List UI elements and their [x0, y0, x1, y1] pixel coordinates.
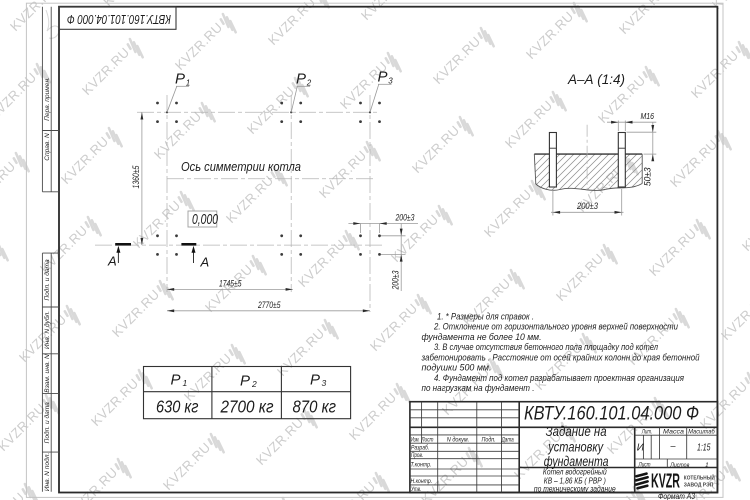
- svg-text:2: 2: [251, 379, 257, 389]
- svg-text:1360±5: 1360±5: [131, 165, 141, 189]
- svg-text:Р: Р: [378, 68, 388, 85]
- svg-text:1:15: 1:15: [697, 441, 711, 453]
- svg-text:Утв.: Утв.: [410, 486, 421, 493]
- svg-text:N докум.: N докум.: [447, 436, 469, 444]
- svg-text:870 кг: 870 кг: [293, 396, 337, 416]
- svg-text:А–А (1:4): А–А (1:4): [567, 71, 625, 87]
- svg-text:2. Отклонение от горизонтал: 2. Отклонение от горизонтального уровня …: [433, 322, 678, 332]
- svg-text:KVZR: KVZR: [651, 470, 680, 492]
- svg-text:установку: установку: [548, 438, 604, 454]
- svg-text:Р: Р: [240, 373, 250, 390]
- svg-text:Инв. N дубл.: Инв. N дубл.: [43, 311, 51, 349]
- svg-text:по техническому задание: по техническому задание: [534, 484, 616, 493]
- svg-text:Разраб.: Разраб.: [411, 444, 429, 452]
- svg-text:М16: М16: [641, 111, 655, 121]
- svg-text:подушки 500 мм.: подушки 500 мм.: [422, 363, 492, 373]
- svg-text:Задание на: Задание на: [546, 423, 607, 439]
- svg-text:2700 кг: 2700 кг: [220, 396, 274, 416]
- svg-text:3. В случае отсутствия бет: 3. В случае отсутствия бетонного пола пл…: [434, 342, 658, 352]
- svg-text:200±3: 200±3: [391, 271, 401, 291]
- svg-text:1745±5: 1745±5: [219, 278, 242, 288]
- svg-text:Перв. примен.: Перв. примен.: [44, 77, 51, 121]
- svg-text:Масштаб: Масштаб: [688, 427, 715, 435]
- svg-text:А: А: [200, 255, 210, 270]
- svg-text:2770±5: 2770±5: [257, 300, 281, 310]
- svg-text:Масса: Масса: [663, 428, 684, 435]
- svg-text:1. * Размеры для справок .: 1. * Размеры для справок .: [437, 312, 534, 322]
- svg-text:4. Фундамент под котел раз: 4. Фундамент под котел разрабатывает про…: [434, 373, 684, 383]
- svg-text:КВТУ.160.101.04.000 Ф: КВТУ.160.101.04.000 Ф: [524, 404, 699, 425]
- svg-text:ЗАВОД РЭП: ЗАВОД РЭП: [684, 482, 714, 488]
- svg-text:1: 1: [705, 462, 709, 469]
- svg-text:Лист: Лист: [421, 437, 434, 444]
- svg-text:И: И: [637, 442, 645, 453]
- svg-text:Р: Р: [296, 70, 306, 87]
- svg-text:Подп. и дата: Подп. и дата: [43, 259, 51, 301]
- svg-text:Изм.: Изм.: [411, 437, 420, 444]
- svg-text:Взам. инв. N: Взам. инв. N: [44, 354, 51, 393]
- svg-text:3: 3: [322, 378, 327, 388]
- svg-text:А: А: [107, 254, 117, 269]
- svg-text:Листов: Листов: [670, 462, 690, 469]
- svg-text:фундамента не более 10 мм.: фундамента не более 10 мм.: [422, 332, 542, 342]
- svg-text:Котел водогрейный: Котел водогрейный: [543, 468, 607, 477]
- svg-text:Справ. N: Справ. N: [44, 133, 51, 161]
- svg-text:Н.контр.: Н.контр.: [411, 478, 433, 485]
- svg-text:фундамента: фундамента: [544, 453, 609, 469]
- svg-text:Р: Р: [175, 70, 185, 87]
- svg-text:Формат А3: Формат А3: [658, 492, 695, 500]
- svg-text:0,000: 0,000: [192, 211, 218, 228]
- svg-text:забетонировать . Расстояние: забетонировать . Расстояние от осей край…: [421, 352, 700, 362]
- svg-text:Подп. и дата: Подп. и дата: [43, 402, 51, 444]
- svg-text:Лит.: Лит.: [641, 428, 652, 435]
- svg-text:по нагрузкам на фундамент .: по нагрузкам на фундамент .: [422, 383, 535, 393]
- svg-text:Ось симметрии котла: Ось симметрии котла: [181, 160, 301, 174]
- svg-text:Дата: Дата: [501, 437, 514, 444]
- svg-text:КВТУ.160.101.04.000 Ф: КВТУ.160.101.04.000 Ф: [67, 12, 171, 26]
- svg-text:630 кг: 630 кг: [156, 396, 199, 416]
- svg-text:200±3: 200±3: [576, 201, 598, 211]
- svg-text:Р: Р: [171, 372, 181, 389]
- svg-text:1: 1: [183, 378, 188, 388]
- svg-text:КОТЕЛЬНЫЙ: КОТЕЛЬНЫЙ: [684, 473, 715, 481]
- svg-text:50±3: 50±3: [642, 168, 652, 187]
- svg-text:Лист: Лист: [638, 461, 651, 468]
- svg-text:200±3: 200±3: [395, 212, 415, 222]
- svg-text:–: –: [670, 441, 677, 451]
- svg-text:Т.контр.: Т.контр.: [411, 462, 432, 469]
- svg-text:Пров.: Пров.: [411, 452, 423, 459]
- svg-text:Инв. N подл.: Инв. N подл.: [43, 453, 51, 492]
- svg-text:Р: Р: [310, 372, 320, 389]
- svg-text:Подп.: Подп.: [482, 436, 496, 444]
